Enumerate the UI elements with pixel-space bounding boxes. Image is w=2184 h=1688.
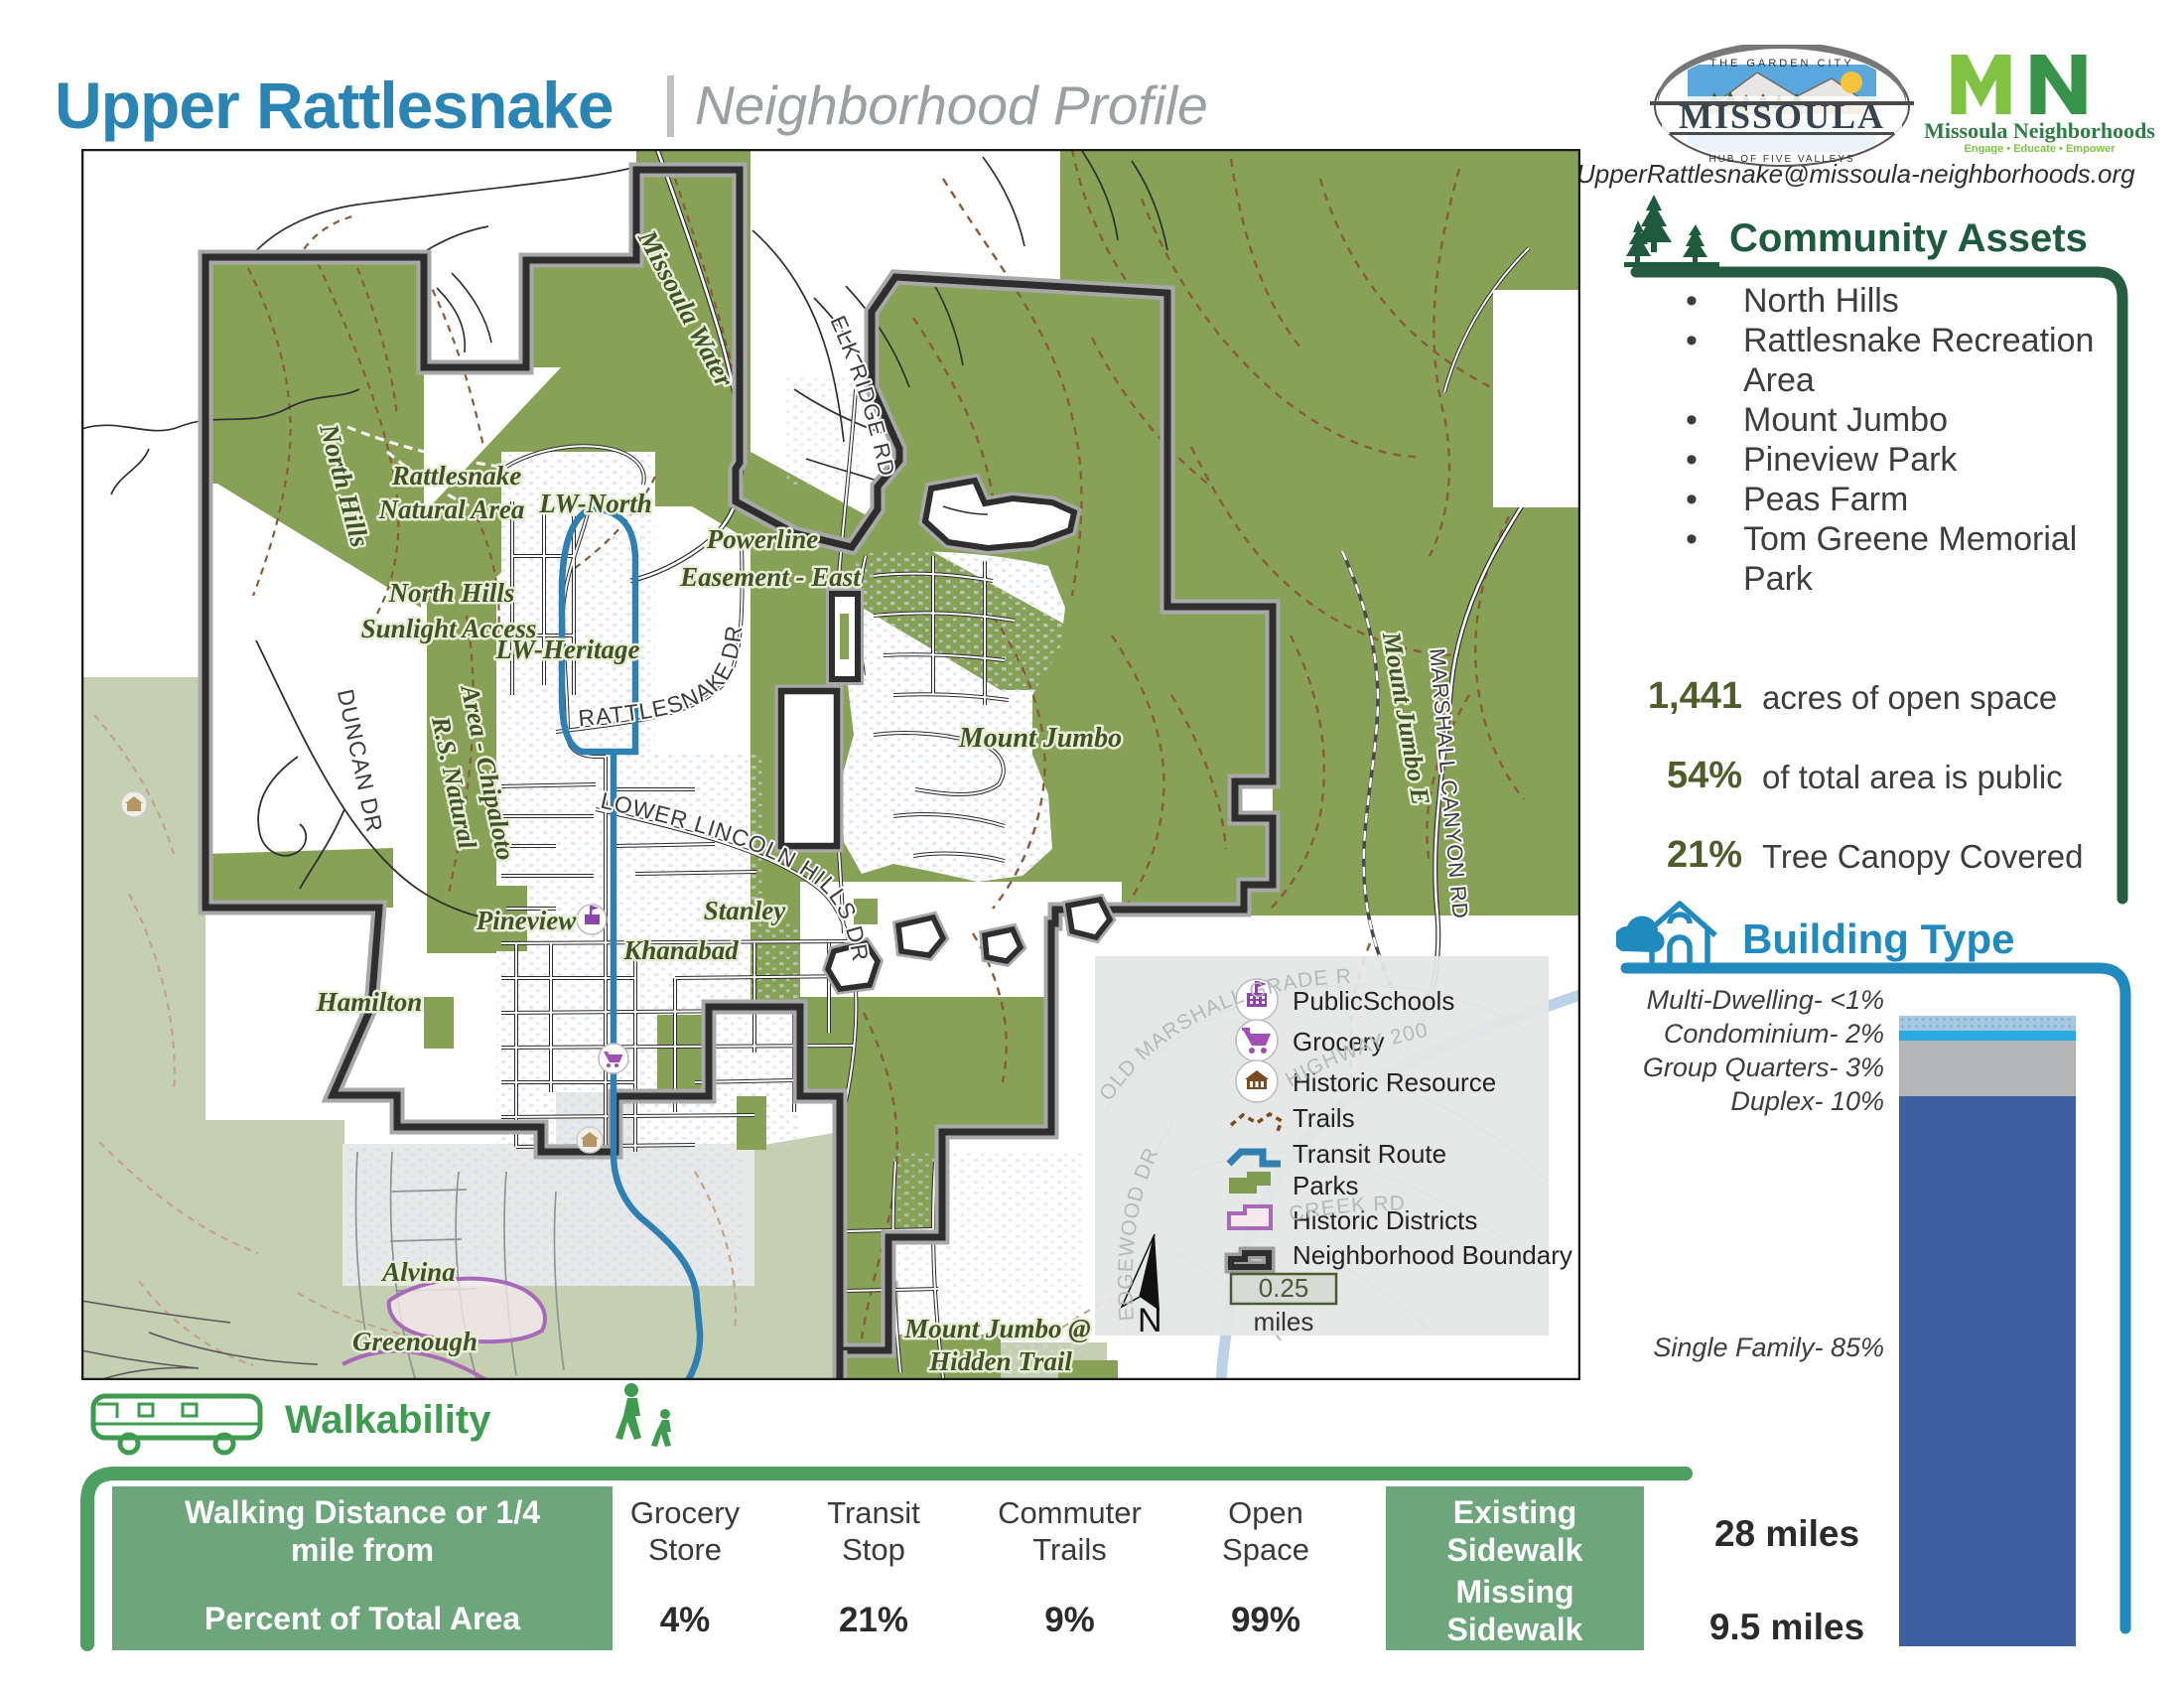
svg-text:Easement - East: Easement - East (679, 562, 862, 592)
svg-text:Mount Jumbo @: Mount Jumbo @ (903, 1314, 1091, 1343)
svg-text:LW-Heritage: LW-Heritage (495, 634, 640, 664)
svg-text:Transit Route: Transit Route (1293, 1139, 1446, 1169)
svg-text:0.25: 0.25 (1259, 1273, 1309, 1303)
svg-text:Rattlesnake: Rattlesnake (391, 461, 522, 491)
svg-text:Trails: Trails (1293, 1103, 1355, 1133)
svg-text:Natural Area: Natural Area (378, 494, 525, 524)
svg-text:Greenough: Greenough (352, 1327, 478, 1356)
svg-text:Pineview: Pineview (476, 906, 577, 935)
svg-text:MISSOULA: MISSOULA (1679, 96, 1885, 136)
svg-text:North Hills: North Hills (388, 578, 515, 608)
svg-text:LW-North: LW-North (538, 489, 652, 518)
svg-text:HUB OF FIVE VALLEYS: HUB OF FIVE VALLEYS (1708, 154, 1854, 165)
svg-text:Mount Jumbo: Mount Jumbo (958, 723, 1122, 754)
svg-text:Missoula Neighborhoods: Missoula Neighborhoods (1924, 118, 2155, 143)
svg-text:N: N (1138, 1302, 1162, 1339)
svg-text:Engage • Educate • Empower: Engage • Educate • Empower (1965, 143, 2116, 154)
svg-text:miles: miles (1254, 1307, 1314, 1336)
svg-text:Powerline: Powerline (706, 524, 819, 554)
svg-text:PublicSchools: PublicSchools (1293, 986, 1454, 1016)
svg-text:Hidden Trail: Hidden Trail (928, 1346, 1072, 1376)
svg-text:Alvina: Alvina (380, 1257, 456, 1287)
svg-text:Khanabad: Khanabad (622, 935, 739, 965)
svg-text:THE GARDEN CITY: THE GARDEN CITY (1709, 58, 1853, 70)
svg-text:Neighborhood Boundary: Neighborhood Boundary (1293, 1240, 1572, 1270)
svg-text:Stanley: Stanley (704, 896, 787, 925)
svg-text:Hamilton: Hamilton (316, 987, 423, 1017)
